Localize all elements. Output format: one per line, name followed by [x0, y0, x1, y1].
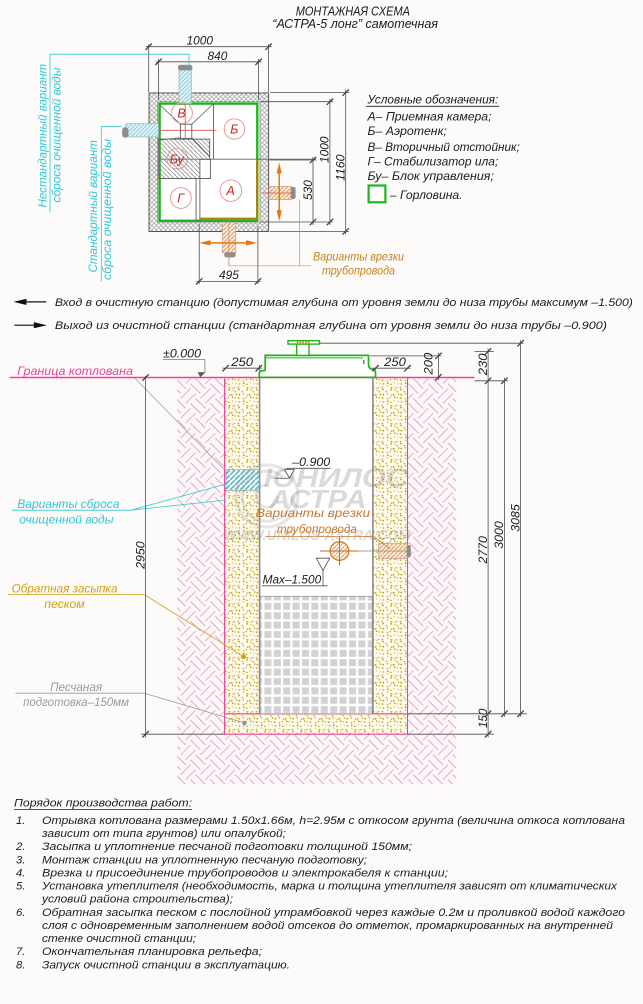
svg-text:“АСТРА-5 лонг” самотечная: “АСТРА-5 лонг” самотечная [272, 16, 438, 31]
svg-text:слоя с одновременным заполнени: слоя с одновременным заполнением водой о… [42, 920, 614, 932]
svg-text:1000: 1000 [187, 36, 214, 48]
svg-text:Граница котлована: Граница котлована [17, 366, 133, 378]
svg-text:1160: 1160 [336, 154, 348, 181]
svg-text:Стандартный вариант: Стандартный вариант [88, 140, 100, 273]
svg-text:стенке очистной станции;: стенке очистной станции; [42, 933, 196, 945]
svg-text:8.: 8. [16, 959, 25, 971]
svg-text:Условные обозначения:: Условные обозначения: [366, 95, 498, 107]
svg-text:250: 250 [230, 357, 254, 369]
svg-text:Нестандартный вариант: Нестандартный вариант [38, 63, 50, 207]
svg-text:подготовка–150мм: подготовка–150мм [23, 697, 129, 709]
svg-text:Врезка и присоединение трубопр: Врезка и присоединение трубопроводов и э… [42, 867, 448, 879]
svg-text:А: А [225, 184, 234, 198]
svg-text:2950: 2950 [135, 541, 147, 570]
svg-text:сброса очищенной воды: сброса очищенной воды [102, 138, 114, 280]
svg-text:Выход из очистной станции (ста: Выход из очистной станции (стандартная г… [55, 320, 607, 332]
svg-text:230: 230 [478, 353, 490, 377]
svg-text:Порядок производства работ:: Порядок производства работ: [14, 798, 192, 810]
svg-text:530: 530 [303, 180, 315, 200]
svg-text:495: 495 [219, 270, 239, 282]
svg-text:4.: 4. [16, 867, 25, 879]
svg-text:трубопровода: трубопровода [277, 522, 357, 536]
svg-text:– Горловина.: – Горловина. [389, 190, 463, 202]
svg-text:7.: 7. [16, 946, 25, 958]
svg-text:3000: 3000 [494, 521, 506, 549]
svg-text:Б– Аэротенк;: Б– Аэротенк; [368, 126, 447, 138]
svg-text:Варианты врезки: Варианты врезки [256, 506, 370, 520]
svg-text:840: 840 [208, 51, 228, 63]
svg-text:А– Приемная камера;: А– Приемная камера; [366, 111, 491, 123]
svg-text:трубопровода: трубопровода [322, 266, 395, 278]
svg-text:Отрывка котлована размерами 1.: Отрывка котлована размерами 1.50х1.66м, … [42, 815, 625, 827]
svg-text:В– Вторичный отстойник;: В– Вторичный отстойник; [368, 142, 520, 154]
svg-text:сброса очищенной воды: сброса очищенной воды [52, 67, 64, 203]
svg-text:3.: 3. [16, 854, 25, 866]
svg-text:250: 250 [383, 357, 407, 369]
svg-text:Бу: Бу [170, 152, 185, 166]
svg-text:Песчаная: Песчаная [50, 682, 102, 694]
svg-text:очищенной воды: очищенной воды [19, 514, 114, 526]
svg-text:Max–1.500: Max–1.500 [263, 573, 322, 587]
svg-text:условий района строительства);: условий района строительства); [41, 894, 233, 906]
svg-text:Варианты врезки: Варианты врезки [313, 252, 405, 264]
svg-text:Г– Стабилизатор ила;: Г– Стабилизатор ила; [368, 157, 499, 169]
svg-text:Запуск очистной станции в эксп: Запуск очистной станции в эксплуатацию. [42, 959, 290, 971]
svg-text:2770: 2770 [478, 535, 490, 564]
svg-text:Обратная засыпка: Обратная засыпка [12, 584, 118, 596]
svg-text:150: 150 [478, 708, 490, 728]
svg-text:5.: 5. [16, 881, 25, 893]
svg-text:В: В [177, 107, 185, 121]
svg-text:зависит от типа грунтов) или о: зависит от типа грунтов) или опалубкой; [41, 828, 286, 840]
svg-text:Засыпка и уплотнение песчаной: Засыпка и уплотнение песчаной подготовки… [42, 841, 412, 853]
svg-text:Обратная засыпка песком с посл: Обратная засыпка песком с послойной утра… [42, 907, 625, 919]
svg-text:Вход в очистную станцию (допус: Вход в очистную станцию (допустимая глуб… [55, 297, 633, 309]
svg-text:3085: 3085 [510, 504, 522, 532]
svg-text:2.: 2. [15, 841, 25, 853]
svg-text:±0.000: ±0.000 [163, 346, 201, 360]
svg-text:Монтаж станции на уплотненную: Монтаж станции на уплотненную песчаную п… [42, 854, 367, 866]
svg-text:1.: 1. [16, 815, 25, 827]
svg-text:песком: песком [44, 599, 85, 611]
svg-text:200: 200 [424, 352, 436, 376]
svg-text:Бу– Блок управления;: Бу– Блок управления; [368, 171, 494, 183]
svg-text:6.: 6. [16, 907, 25, 919]
svg-text:1000: 1000 [320, 136, 332, 163]
svg-text:Г: Г [177, 192, 185, 206]
svg-text:Варианты сброса: Варианты сброса [17, 499, 119, 511]
svg-text:Установка утеплителя (необходи: Установка утеплителя (необходимость, мар… [41, 881, 617, 893]
svg-text:–0.900: –0.900 [291, 455, 330, 469]
svg-text:Окончательная планировка релье: Окончательная планировка рельефа; [42, 946, 262, 958]
svg-text:Б: Б [230, 123, 238, 137]
